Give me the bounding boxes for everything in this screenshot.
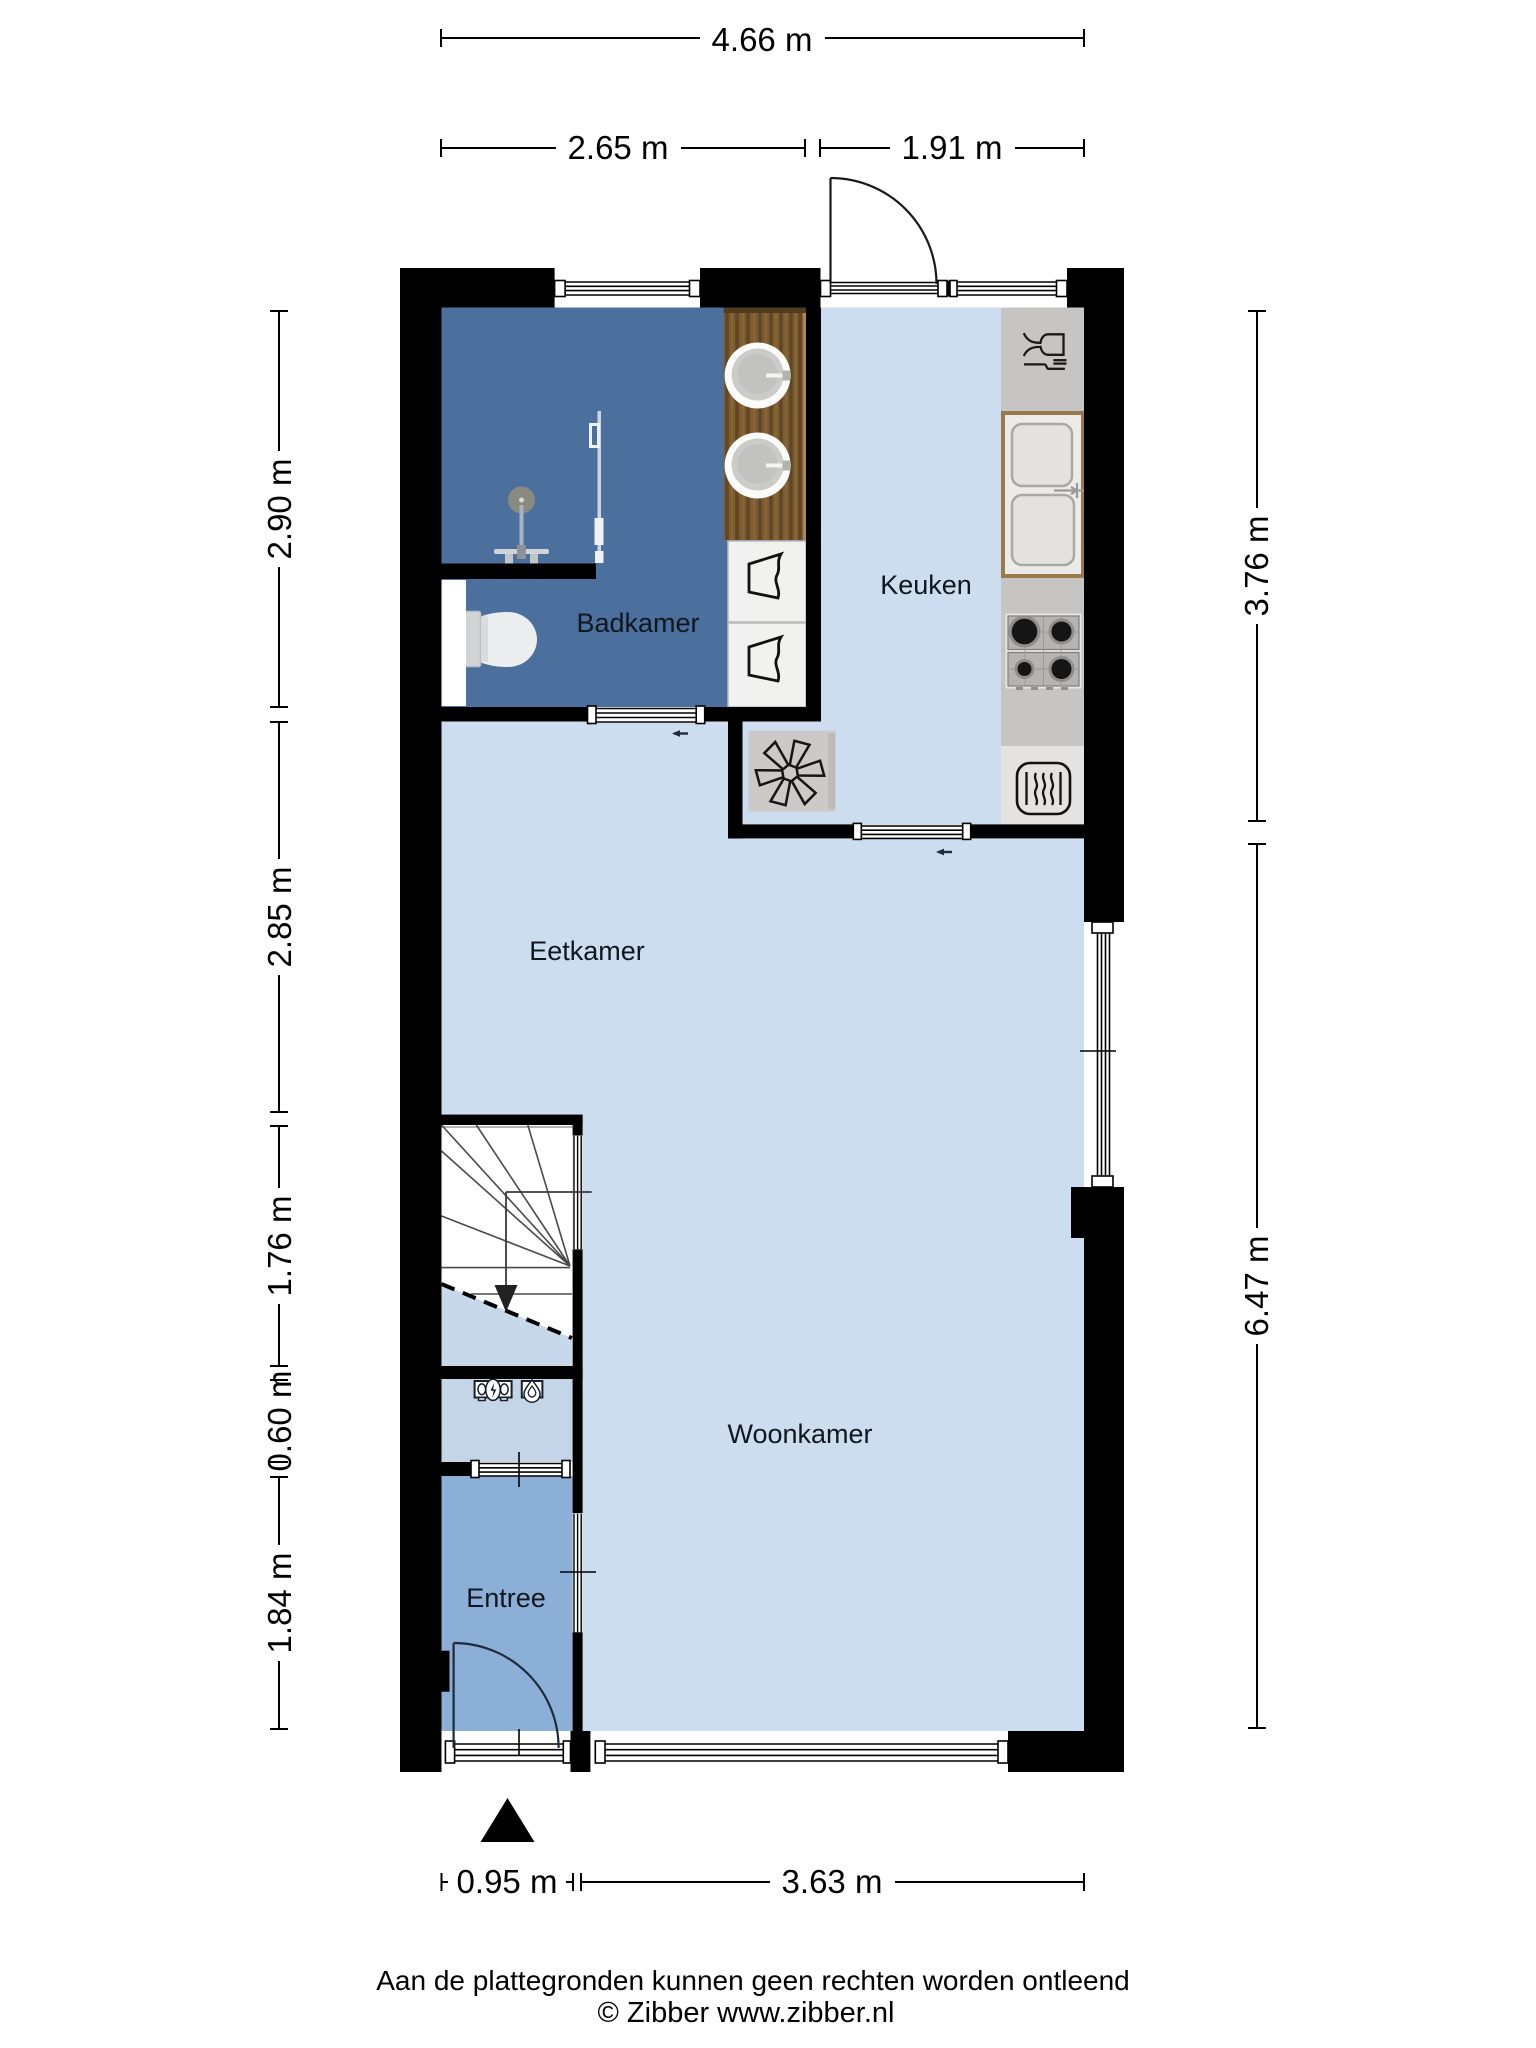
svg-text:1.76 m: 1.76 m bbox=[261, 1196, 298, 1297]
svg-text:3.63 m: 3.63 m bbox=[782, 1863, 883, 1900]
svg-text:0.95 m: 0.95 m bbox=[457, 1863, 558, 1900]
svg-text:2.90 m: 2.90 m bbox=[261, 459, 298, 560]
svg-text:0.60 m: 0.60 m bbox=[261, 1371, 298, 1472]
svg-text:Eetkamer: Eetkamer bbox=[529, 936, 645, 966]
svg-text:Aan de plattegronden kunnen ge: Aan de plattegronden kunnen geen rechten… bbox=[376, 1965, 1129, 1996]
svg-text:Entree: Entree bbox=[466, 1583, 546, 1613]
svg-text:Keuken: Keuken bbox=[880, 570, 972, 600]
svg-text:2.85 m: 2.85 m bbox=[261, 867, 298, 968]
svg-text:2.65 m: 2.65 m bbox=[568, 129, 669, 166]
svg-text:1.91 m: 1.91 m bbox=[902, 129, 1003, 166]
svg-text:Woonkamer: Woonkamer bbox=[727, 1419, 872, 1449]
svg-text:Badkamer: Badkamer bbox=[576, 608, 699, 638]
svg-text:© Zibber www.zibber.nl: © Zibber www.zibber.nl bbox=[598, 1997, 895, 2029]
svg-text:4.66 m: 4.66 m bbox=[712, 21, 813, 58]
svg-text:6.47 m: 6.47 m bbox=[1238, 1236, 1275, 1337]
svg-text:1.84 m: 1.84 m bbox=[261, 1553, 298, 1654]
svg-text:3.76 m: 3.76 m bbox=[1238, 516, 1275, 617]
